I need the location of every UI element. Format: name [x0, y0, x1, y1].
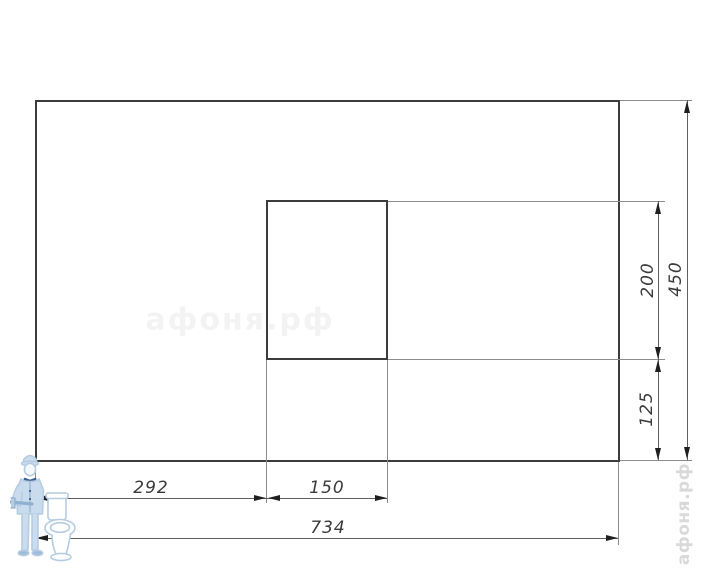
- arrowhead-125-bottom: [655, 448, 661, 460]
- dimension-line-292-150: [35, 498, 387, 499]
- arrowhead-150-right: [375, 495, 387, 501]
- arrowhead-450-top: [684, 101, 690, 113]
- extension-line-cutout-right-down: [387, 360, 388, 503]
- dim-label-450: 450: [666, 261, 686, 296]
- arrowhead-734-right: [606, 535, 618, 541]
- side-watermark-text: афоня.рф: [674, 463, 694, 565]
- dim-label-292: 292: [133, 478, 168, 498]
- arrowhead-200-top: [655, 202, 661, 214]
- arrowhead-292-right: [254, 495, 266, 501]
- dim-label-734: 734: [310, 518, 345, 538]
- dimension-line-734: [35, 538, 618, 539]
- extension-line-cutout-bottom-right: [388, 359, 665, 360]
- dim-label-200: 200: [638, 262, 658, 297]
- extension-line-right-down: [618, 462, 619, 545]
- drawing-canvas: 292 150 734 200 450 125 афоня.рф афоня.р…: [0, 0, 701, 571]
- extension-line-top-right: [620, 100, 692, 101]
- dimension-line-450: [687, 100, 688, 460]
- arrowhead-125-top: [655, 360, 661, 372]
- plumber-mascot-icon: [10, 452, 80, 570]
- arrowhead-150-left: [268, 495, 280, 501]
- dim-label-125: 125: [637, 391, 657, 426]
- dimension-line-200-125: [658, 201, 659, 460]
- arrowhead-200-bottom: [655, 347, 661, 359]
- extension-line-bottom-right: [620, 460, 692, 461]
- extension-line-cutout-top-right: [388, 201, 665, 202]
- dim-label-150: 150: [309, 478, 344, 498]
- arrowhead-450-bottom: [684, 447, 690, 459]
- extension-line-cutout-left-down: [266, 360, 267, 503]
- center-watermark-text: афоня.рф: [145, 303, 334, 338]
